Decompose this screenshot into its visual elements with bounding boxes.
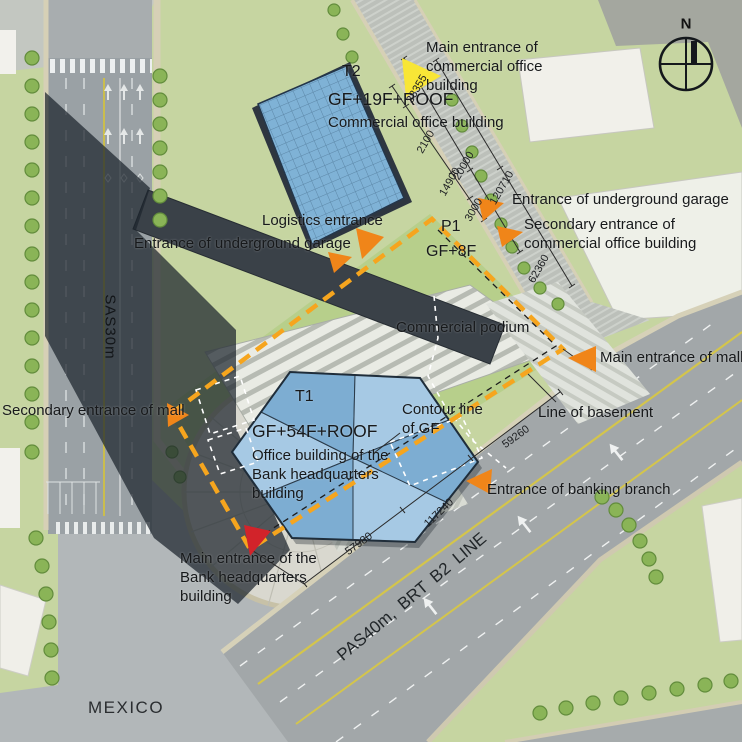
label-banking-branch-entrance: Entrance of banking branch [487, 480, 670, 499]
label-contour-gf: Contour line of GF [402, 400, 484, 438]
label-secondary-mall-entrance: Secondary entrance of mall [2, 401, 185, 420]
label-garage-west-entrance: Entrance of underground garage [134, 234, 351, 253]
label-line-basement: Line of basement [538, 403, 653, 422]
label-t2-code: T2 [342, 62, 361, 82]
label-logistics-entrance: Logistics entrance [262, 211, 383, 230]
label-main-office-entrance: Main entrance of commercial office build… [426, 38, 588, 96]
label-district: MEXICO [88, 698, 164, 718]
label-t1-code: T1 [295, 387, 314, 407]
label-podium-code: P1 [441, 217, 461, 237]
label-t2-name: Commercial office building [328, 113, 504, 132]
label-podium-floors: GF+8F [426, 242, 476, 262]
site-plan: Main entrance of commercial office build… [0, 0, 742, 742]
label-west-road: SAS30m [102, 294, 119, 359]
label-podium-name: Commercial podium [396, 318, 529, 337]
compass-icon [660, 38, 712, 90]
label-garage-east-entrance: Entrance of underground garage [512, 190, 729, 209]
label-compass-north: N [681, 16, 692, 33]
label-secondary-office-entrance: Secondary entrance of commercial office … [524, 215, 704, 253]
building-west-small [0, 30, 16, 74]
label-main-bank-entrance: Main entrance of the Bank headquarters b… [180, 549, 332, 607]
label-t1-name: Office building of the Bank headquarters… [252, 446, 402, 504]
label-t1-floors: GF+54F+ROOF [252, 420, 377, 442]
label-t2-floors: GF+19F+ROOF [328, 88, 453, 110]
label-main-mall-entrance: Main entrance of mall [600, 348, 742, 367]
building-west-mid [0, 448, 20, 528]
